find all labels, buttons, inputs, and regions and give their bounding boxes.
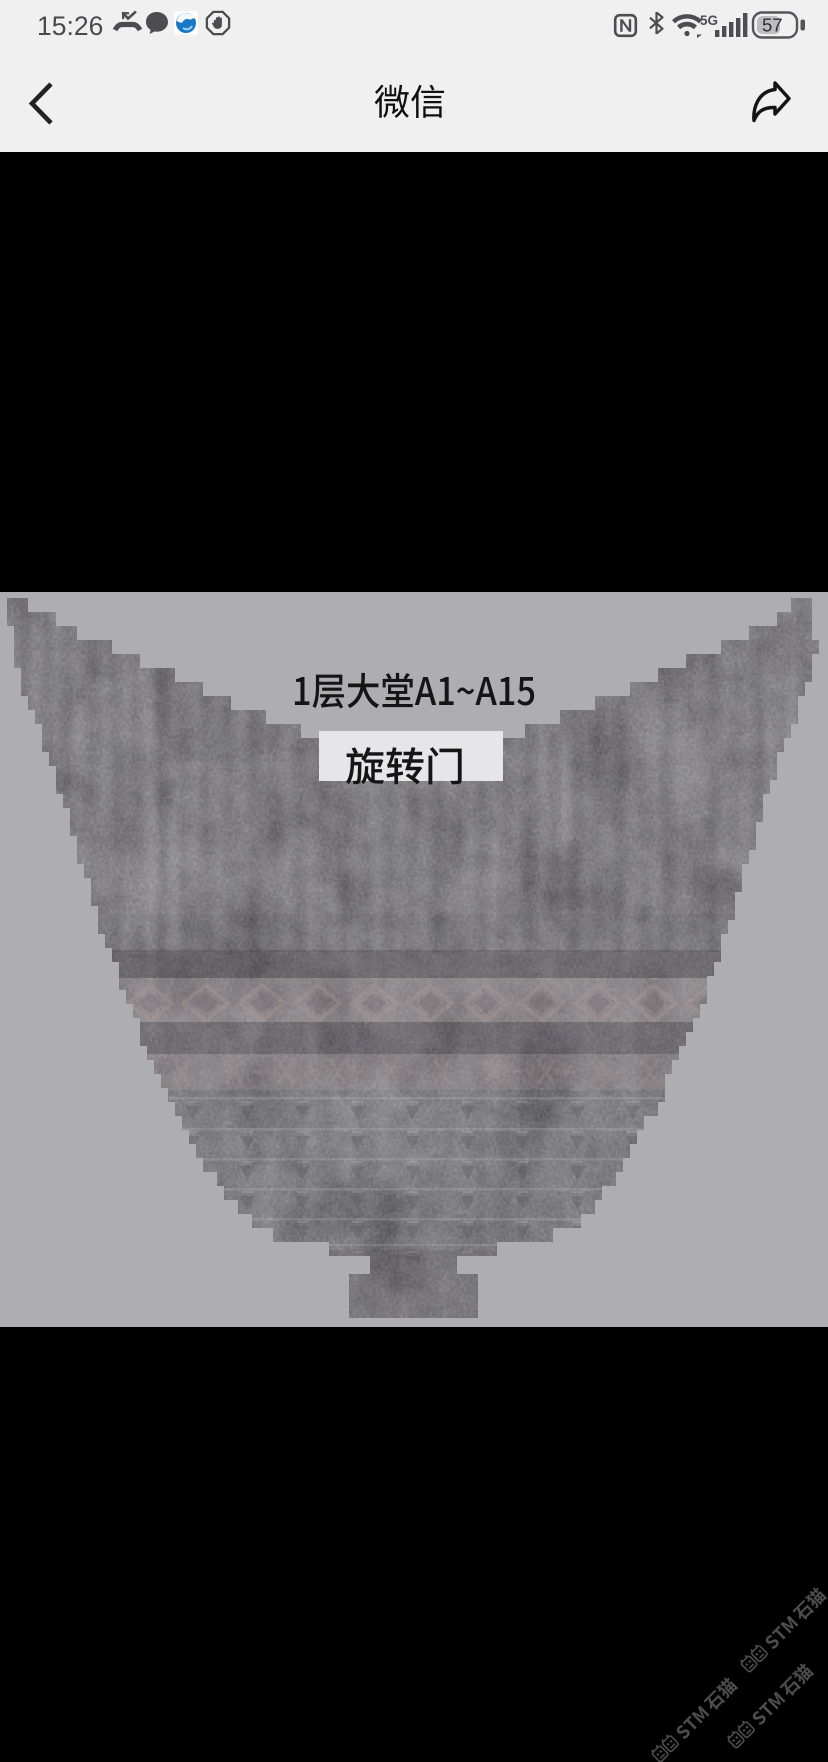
svg-text:5G: 5G	[700, 13, 718, 28]
svg-text:57: 57	[762, 15, 783, 36]
svg-text:15:26: 15:26	[37, 11, 103, 41]
